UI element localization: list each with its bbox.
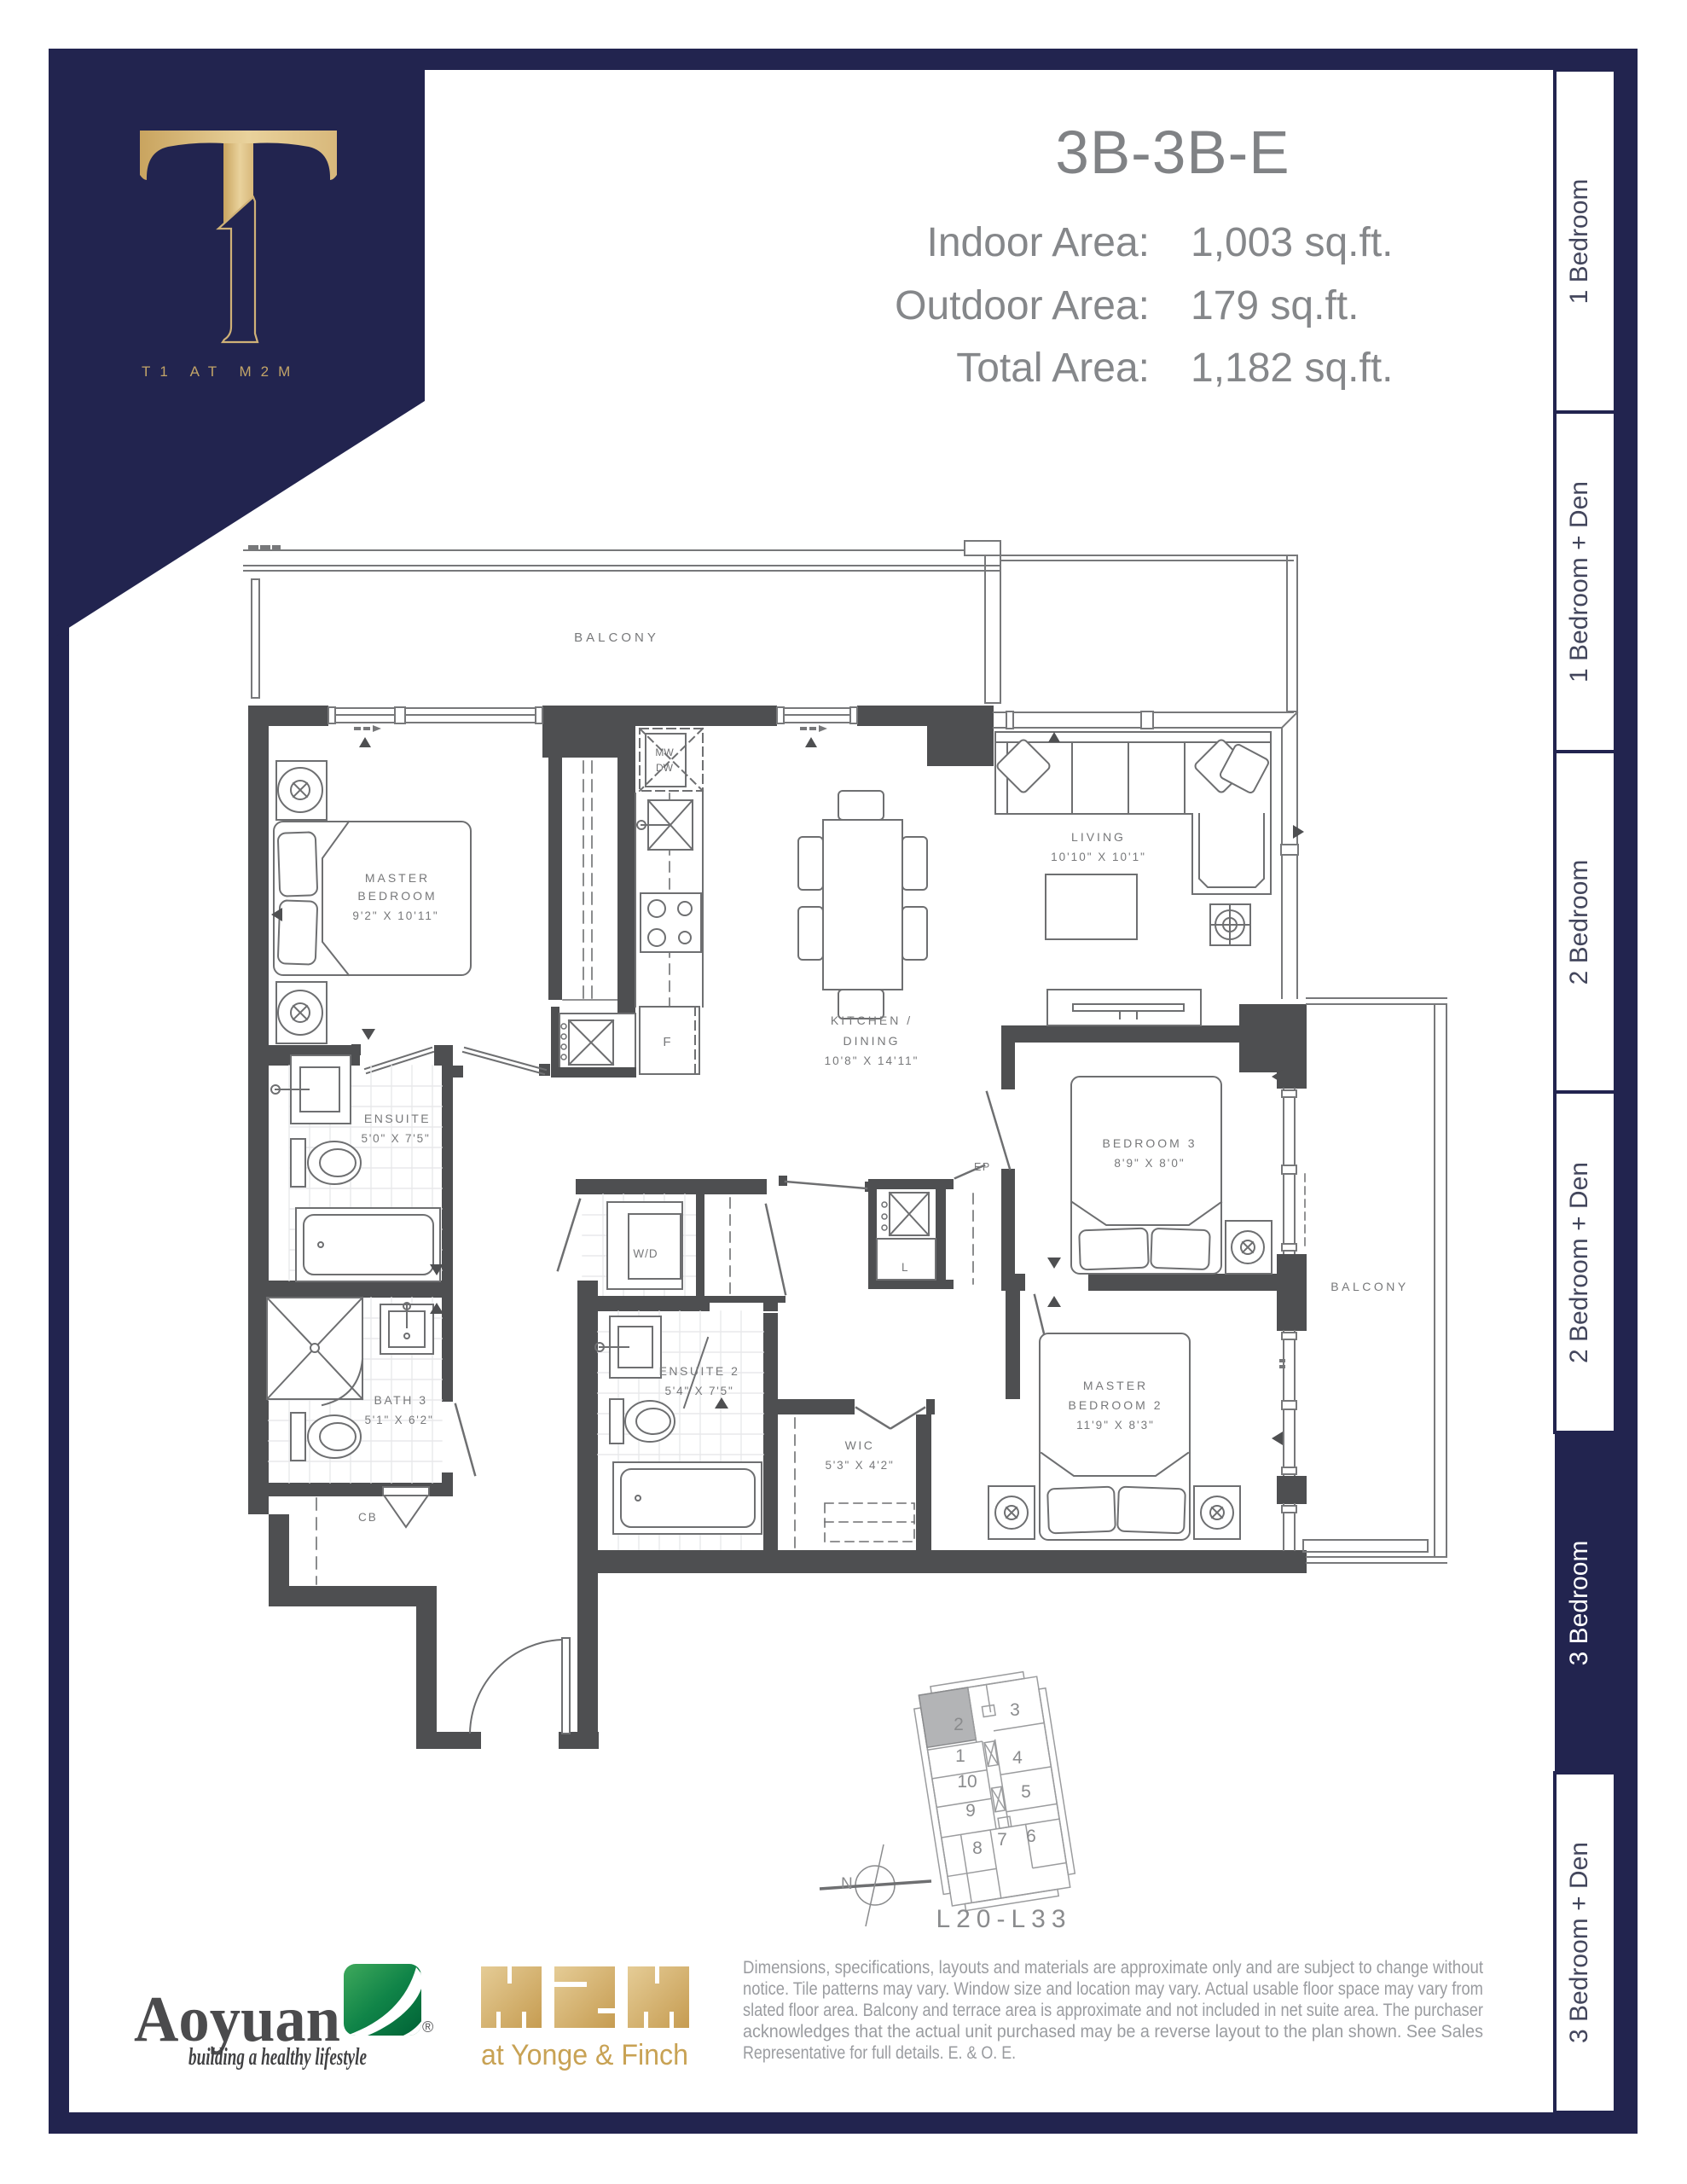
svg-text:4: 4 <box>1012 1748 1023 1768</box>
svg-text:L20-L33: L20-L33 <box>936 1905 1071 1933</box>
svg-text:Total Area:: Total Area: <box>956 346 1150 391</box>
svg-text:Outdoor Area:: Outdoor Area: <box>895 283 1150 328</box>
svg-text:7: 7 <box>997 1830 1007 1850</box>
svg-text:5'1" X 6'2": 5'1" X 6'2" <box>364 1414 433 1426</box>
svg-text:1 Bedroom + Den: 1 Bedroom + Den <box>1565 481 1593 682</box>
svg-text:EP: EP <box>974 1161 991 1173</box>
svg-text:at Yonge & Finch: at Yonge & Finch <box>481 2039 688 2071</box>
svg-text:5'0" X 7'5": 5'0" X 7'5" <box>361 1132 430 1145</box>
svg-text:®: ® <box>422 2018 433 2036</box>
svg-text:LIVING: LIVING <box>1071 830 1126 844</box>
svg-text:BALCONY: BALCONY <box>1330 1280 1408 1293</box>
svg-text:BATH 3: BATH 3 <box>374 1393 428 1407</box>
svg-text:ENSUITE 2: ENSUITE 2 <box>659 1364 740 1378</box>
svg-text:KITCHEN /: KITCHEN / <box>831 1014 913 1027</box>
svg-text:BEDROOM: BEDROOM <box>357 889 437 903</box>
svg-text:1: 1 <box>955 1746 965 1766</box>
svg-text:2: 2 <box>954 1715 964 1734</box>
svg-text:8'9" X 8'0": 8'9" X 8'0" <box>1114 1157 1185 1170</box>
svg-text:L: L <box>901 1261 908 1274</box>
svg-text:WIC: WIC <box>845 1438 875 1452</box>
svg-text:3: 3 <box>1010 1700 1020 1720</box>
svg-text:1,003 sq.ft.: 1,003 sq.ft. <box>1191 220 1394 265</box>
svg-text:2 Bedroom + Den: 2 Bedroom + Den <box>1565 1162 1593 1363</box>
svg-text:179 sq.ft.: 179 sq.ft. <box>1191 283 1359 328</box>
svg-text:CB: CB <box>358 1511 378 1524</box>
svg-text:W/D: W/D <box>633 1247 658 1260</box>
svg-text:DINING: DINING <box>843 1034 901 1048</box>
svg-text:DW: DW <box>656 762 674 774</box>
svg-text:F: F <box>663 1035 670 1049</box>
svg-text:2 Bedroom: 2 Bedroom <box>1565 860 1593 985</box>
svg-text:MASTER: MASTER <box>365 871 430 885</box>
svg-text:6: 6 <box>1026 1827 1036 1846</box>
svg-text:10'10" X 10'1": 10'10" X 10'1" <box>1051 851 1146 863</box>
svg-text:5'4" X 7'5": 5'4" X 7'5" <box>664 1385 733 1397</box>
svg-text:MW: MW <box>655 746 674 758</box>
svg-text:BEDROOM 2: BEDROOM 2 <box>1068 1398 1162 1412</box>
svg-text:9'2" X 10'11": 9'2" X 10'11" <box>352 909 438 922</box>
svg-text:1 Bedroom: 1 Bedroom <box>1565 179 1593 305</box>
svg-text:ENSUITE: ENSUITE <box>364 1112 431 1125</box>
svg-text:5'3" X 4'2": 5'3" X 4'2" <box>825 1459 894 1472</box>
svg-text:5: 5 <box>1021 1782 1031 1802</box>
svg-text:BALCONY: BALCONY <box>574 630 659 645</box>
svg-text:10'8" X 14'11": 10'8" X 14'11" <box>825 1054 919 1067</box>
svg-text:1,182 sq.ft.: 1,182 sq.ft. <box>1191 346 1394 391</box>
svg-text:3 Bedroom: 3 Bedroom <box>1565 1541 1593 1666</box>
svg-text:T1 AT M2M: T1 AT M2M <box>142 363 299 380</box>
svg-text:3B-3B-E: 3B-3B-E <box>1055 119 1290 187</box>
svg-text:MASTER: MASTER <box>1083 1379 1148 1392</box>
svg-text:building a healthy lifestyle: building a healthy lifestyle <box>188 2044 367 2071</box>
svg-text:N: N <box>841 1875 853 1893</box>
svg-text:3 Bedroom + Den: 3 Bedroom + Den <box>1565 1842 1593 2043</box>
svg-text:10: 10 <box>957 1772 977 1792</box>
svg-text:9: 9 <box>965 1801 976 1821</box>
svg-text:BEDROOM 3: BEDROOM 3 <box>1102 1136 1197 1150</box>
svg-text:11'9" X 8'3": 11'9" X 8'3" <box>1076 1419 1155 1432</box>
svg-text:8: 8 <box>972 1838 983 1858</box>
svg-text:Indoor Area:: Indoor Area: <box>926 220 1150 265</box>
